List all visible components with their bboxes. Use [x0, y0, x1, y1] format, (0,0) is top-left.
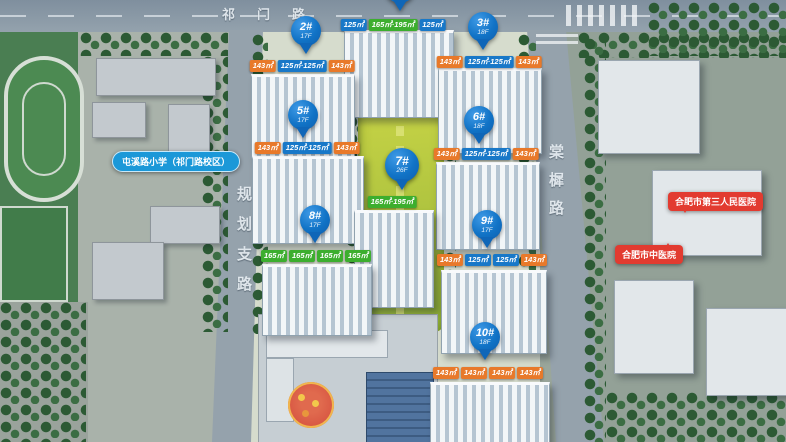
tower-10 [430, 382, 550, 442]
unit-size-tag[interactable]: 143㎡ [437, 254, 463, 266]
unit-tags-building-8[interactable]: 165㎡ 165㎡ 165㎡ 165㎡ [261, 250, 371, 262]
building-pin-2[interactable]: 2# 17F [291, 16, 321, 61]
pin-tail [308, 232, 322, 250]
pin-head: 8# 17F [300, 205, 330, 235]
unit-size-tag[interactable]: 143㎡ [512, 148, 538, 160]
building-pin-10[interactable]: 10# 18F [470, 322, 500, 367]
hospital-building [598, 60, 700, 154]
poi-tcm-hospital-label[interactable]: 合肥市中医院 [615, 245, 683, 264]
unit-size-tag[interactable]: 165㎡ [317, 250, 343, 262]
unit-size-tag[interactable]: 125㎡·125㎡ [465, 56, 514, 68]
unit-size-tag[interactable]: 143㎡ [433, 367, 459, 379]
tree-band [80, 32, 228, 56]
pin-tail [478, 349, 492, 367]
residential-site-plan: 祁门路 规划支路 棠樨路 125㎡ 165㎡·195㎡ 125㎡ 143㎡ 12… [0, 0, 786, 442]
unit-size-tag[interactable]: 143㎡ [333, 142, 359, 154]
running-track [4, 56, 84, 202]
poi-school-label[interactable]: 屯溪路小学（祁门路校区） [112, 151, 240, 172]
school-building [150, 206, 220, 244]
building-pin-8[interactable]: 8# 17F [300, 205, 330, 250]
unit-size-tag[interactable]: 143㎡ [434, 148, 460, 160]
unit-size-tag[interactable]: 125㎡·125㎡ [278, 60, 327, 72]
unit-tags-building-1[interactable]: 125㎡ 165㎡·195㎡ 125㎡ [341, 19, 446, 31]
building-pin-6[interactable]: 6# 18F [464, 106, 494, 151]
unit-size-tag[interactable]: 165㎡·195㎡ [368, 196, 417, 208]
unit-size-tag[interactable]: 125㎡ [419, 19, 445, 31]
unit-size-tag[interactable]: 143㎡ [461, 367, 487, 379]
unit-size-tag[interactable]: 125㎡ [341, 19, 367, 31]
playground-court [288, 382, 334, 428]
unit-size-tag[interactable]: 143㎡ [517, 367, 543, 379]
crosswalk-top [566, 5, 638, 26]
unit-tags-building-9[interactable]: 143㎡ 125㎡ 125㎡ 143㎡ [437, 254, 547, 266]
school-building [92, 102, 146, 138]
unit-size-tag[interactable]: 125㎡ [465, 254, 491, 266]
unit-tags-building-3[interactable]: 143㎡ 125㎡·125㎡ 143㎡ [437, 56, 542, 68]
unit-tags-building-2[interactable]: 143㎡ 125㎡·125㎡ 143㎡ [250, 60, 355, 72]
sports-field [0, 206, 68, 302]
unit-size-tag[interactable]: 143㎡ [515, 56, 541, 68]
tree-band [0, 302, 86, 442]
unit-size-tag[interactable]: 143㎡ [437, 56, 463, 68]
tree-band [648, 2, 786, 56]
building-pin-3[interactable]: 3# 18F [468, 12, 498, 57]
pin-head: 3# 18F [468, 12, 498, 42]
pin-head: 7# 26F [385, 148, 419, 182]
pin-head: 5# 17F [288, 100, 318, 130]
unit-size-tag[interactable]: 143㎡ [250, 60, 276, 72]
unit-size-tag[interactable]: 165㎡ [345, 250, 371, 262]
pin-head: 10# 18F [470, 322, 500, 352]
pin-head: 9# 17F [472, 210, 502, 240]
pin-tail [299, 43, 313, 61]
road-label-planned-branch: 规划支路 [233, 186, 254, 306]
unit-size-tag[interactable]: 165㎡ [261, 250, 287, 262]
pin-tail [476, 39, 490, 57]
pin-tail [296, 127, 310, 145]
unit-size-tag[interactable]: 143㎡ [255, 142, 281, 154]
pin-tail [480, 237, 494, 255]
unit-tags-building-10[interactable]: 143㎡ 143㎡ 143㎡ 143㎡ [433, 367, 543, 379]
pin-head: 6# 18F [464, 106, 494, 136]
building-pin-7[interactable]: 7# 26F [385, 148, 419, 197]
unit-size-tag[interactable]: 165㎡ [289, 250, 315, 262]
pin-tail [472, 133, 486, 151]
tree-band [202, 56, 228, 332]
unit-size-tag[interactable]: 143㎡ [328, 60, 354, 72]
building-pin-1-partial[interactable] [385, 0, 415, 18]
poi-third-hospital-label[interactable]: 合肥市第三人民医院 [668, 192, 763, 211]
solar-panel-roof [366, 372, 434, 442]
unit-size-tag[interactable]: 125㎡ [493, 254, 519, 266]
tower-8 [262, 264, 372, 336]
hospital-building [614, 280, 694, 374]
road-label-tangxi: 棠樨路 [545, 144, 566, 228]
unit-size-tag[interactable]: 143㎡ [489, 367, 515, 379]
unit-tags-building-7[interactable]: 165㎡·195㎡ [368, 196, 417, 208]
pin-tail [393, 0, 407, 18]
crosswalk-right-road [536, 34, 578, 46]
hospital-building [706, 308, 786, 396]
pin-tail [395, 179, 409, 197]
unit-size-tag[interactable]: 143㎡ [521, 254, 547, 266]
building-pin-5[interactable]: 5# 17F [288, 100, 318, 145]
unit-size-tag[interactable]: 165㎡·195㎡ [369, 19, 418, 31]
building-pin-9[interactable]: 9# 17F [472, 210, 502, 255]
pin-head: 2# 17F [291, 16, 321, 46]
school-building [92, 242, 164, 300]
school-building [96, 58, 216, 96]
tree-band [606, 392, 786, 442]
